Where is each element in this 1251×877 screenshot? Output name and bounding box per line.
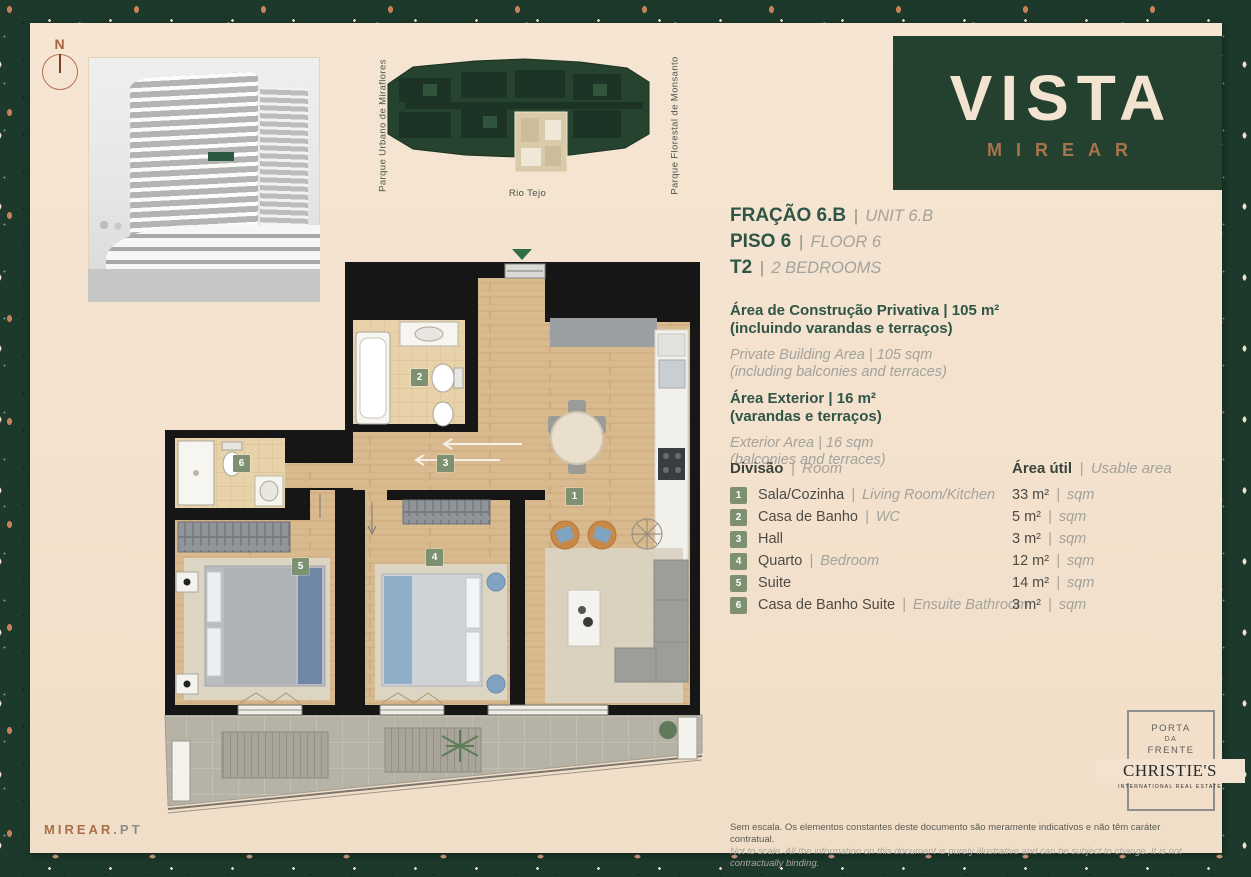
plan-badge-bedroom: 4 — [426, 549, 443, 566]
room-number-badge: 4 — [730, 553, 747, 570]
unit-location-highlight — [208, 152, 234, 161]
compass-north-label: N — [40, 36, 80, 52]
agency-subtitle: INTERNATIONAL REAL ESTATE — [1095, 784, 1245, 790]
balcony — [165, 715, 702, 813]
room-number-badge: 3 — [730, 531, 747, 548]
room-number-badge: 5 — [730, 575, 747, 592]
floor-plan: 1 2 3 4 5 6 — [160, 248, 720, 823]
unit-type-line: T2 | 2 BEDROOMS — [730, 255, 933, 281]
disclaimer-en: Not to scale. All the information on thi… — [730, 846, 1195, 870]
room-number-badge: 6 — [730, 597, 747, 614]
exterior-area-en: Exterior Area | 16 sqm — [730, 435, 1060, 452]
room-table-header: Divisão | Room Área útil | Usable area — [730, 460, 1180, 484]
table-row: 2 Casa de Banho | WC 5 m² | sqm — [730, 506, 1180, 528]
compass-icon: N — [40, 36, 80, 98]
brochure-page: N — [0, 0, 1251, 877]
planter — [678, 717, 697, 759]
unit-info: FRAÇÃO 6.B | UNIT 6.B PISO 6 | FLOOR 6 T… — [730, 203, 933, 281]
keyplan-label-river: Rio Tejo — [365, 188, 690, 199]
table-row: 3 Hall 3 m² | sqm — [730, 528, 1180, 550]
nightstand — [487, 675, 505, 693]
agency-logo: PORTA DA FRENTE CHRISTIE'S INTERNATIONAL… — [1127, 710, 1215, 811]
plan-badge-bathroom: 2 — [411, 369, 428, 386]
bed-throw — [384, 576, 412, 684]
areas-block: Área de Construção Privativa | 105 m² (i… — [730, 302, 1060, 469]
stove — [658, 448, 685, 480]
disclaimer: Sem escala. Os elementos constantes dest… — [730, 822, 1195, 870]
table-row: 6 Casa de Banho Suite | Ensuite Bathroom… — [730, 594, 1180, 616]
disclaimer-pt: Sem escala. Os elementos constantes dest… — [730, 822, 1195, 846]
compass-needle — [59, 54, 61, 73]
unit-floor-line: PISO 6 | FLOOR 6 — [730, 229, 933, 255]
toilet — [432, 364, 454, 392]
key-plan-graphic — [365, 50, 690, 202]
plan-badge-suite: 5 — [292, 558, 309, 575]
ceiling-fan — [632, 519, 662, 549]
room-number-badge: 2 — [730, 509, 747, 526]
private-area-pt: Área de Construção Privativa | 105 m² — [730, 302, 1060, 320]
keyplan-label-left: Parque Urbano de Miraflores — [378, 46, 389, 206]
planter — [172, 741, 190, 801]
corner-plant — [659, 721, 677, 739]
website-url: MIREAR.PT — [44, 822, 143, 837]
exterior-area-pt: Área Exterior | 16 m² — [730, 390, 1060, 408]
agency-name: CHRISTIE'S — [1095, 759, 1245, 783]
entrance-arrow-icon — [512, 249, 532, 260]
table-row: 4 Quarto | Bedroom 12 m² | sqm — [730, 550, 1180, 572]
tower-rendering — [130, 72, 258, 237]
entrance-door — [505, 264, 545, 278]
room-number-badge: 1 — [730, 487, 747, 504]
plan-badge-ensuite: 6 — [233, 455, 250, 472]
trees — [96, 217, 130, 233]
coffee-table — [568, 590, 600, 646]
table-row: 1 Sala/Cozinha | Living Room/Kitchen 33 … — [730, 484, 1180, 506]
tower-wing-rendering — [260, 86, 308, 228]
kitchen-sink — [659, 360, 685, 388]
lounge-bench — [222, 732, 328, 778]
plan-badge-hall: 3 — [437, 455, 454, 472]
compass-circle — [42, 54, 78, 90]
brand-subname: MIREAR — [973, 140, 1142, 161]
nightstand — [487, 573, 505, 591]
brand-logo: VISTA MIREAR — [893, 36, 1222, 190]
unit-fraction-line: FRAÇÃO 6.B | UNIT 6.B — [730, 203, 933, 229]
room-table: Divisão | Room Área útil | Usable area 1… — [730, 460, 1180, 616]
plan-badge-living: 1 — [566, 488, 583, 505]
bidet — [433, 402, 453, 426]
entry-corridor-floor — [478, 278, 545, 432]
brand-name: VISTA — [942, 66, 1174, 130]
table-row: 5 Suite 14 m² | sqm — [730, 572, 1180, 594]
site-key-plan: Parque Urbano de Miraflores Parque Flore… — [365, 50, 690, 202]
floor-plan-graphic — [160, 248, 720, 823]
keyplan-label-right: Parque Florestal de Monsanto — [670, 46, 681, 206]
bed-runner — [298, 568, 322, 684]
private-area-en: Private Building Area | 105 sqm — [730, 347, 1060, 364]
